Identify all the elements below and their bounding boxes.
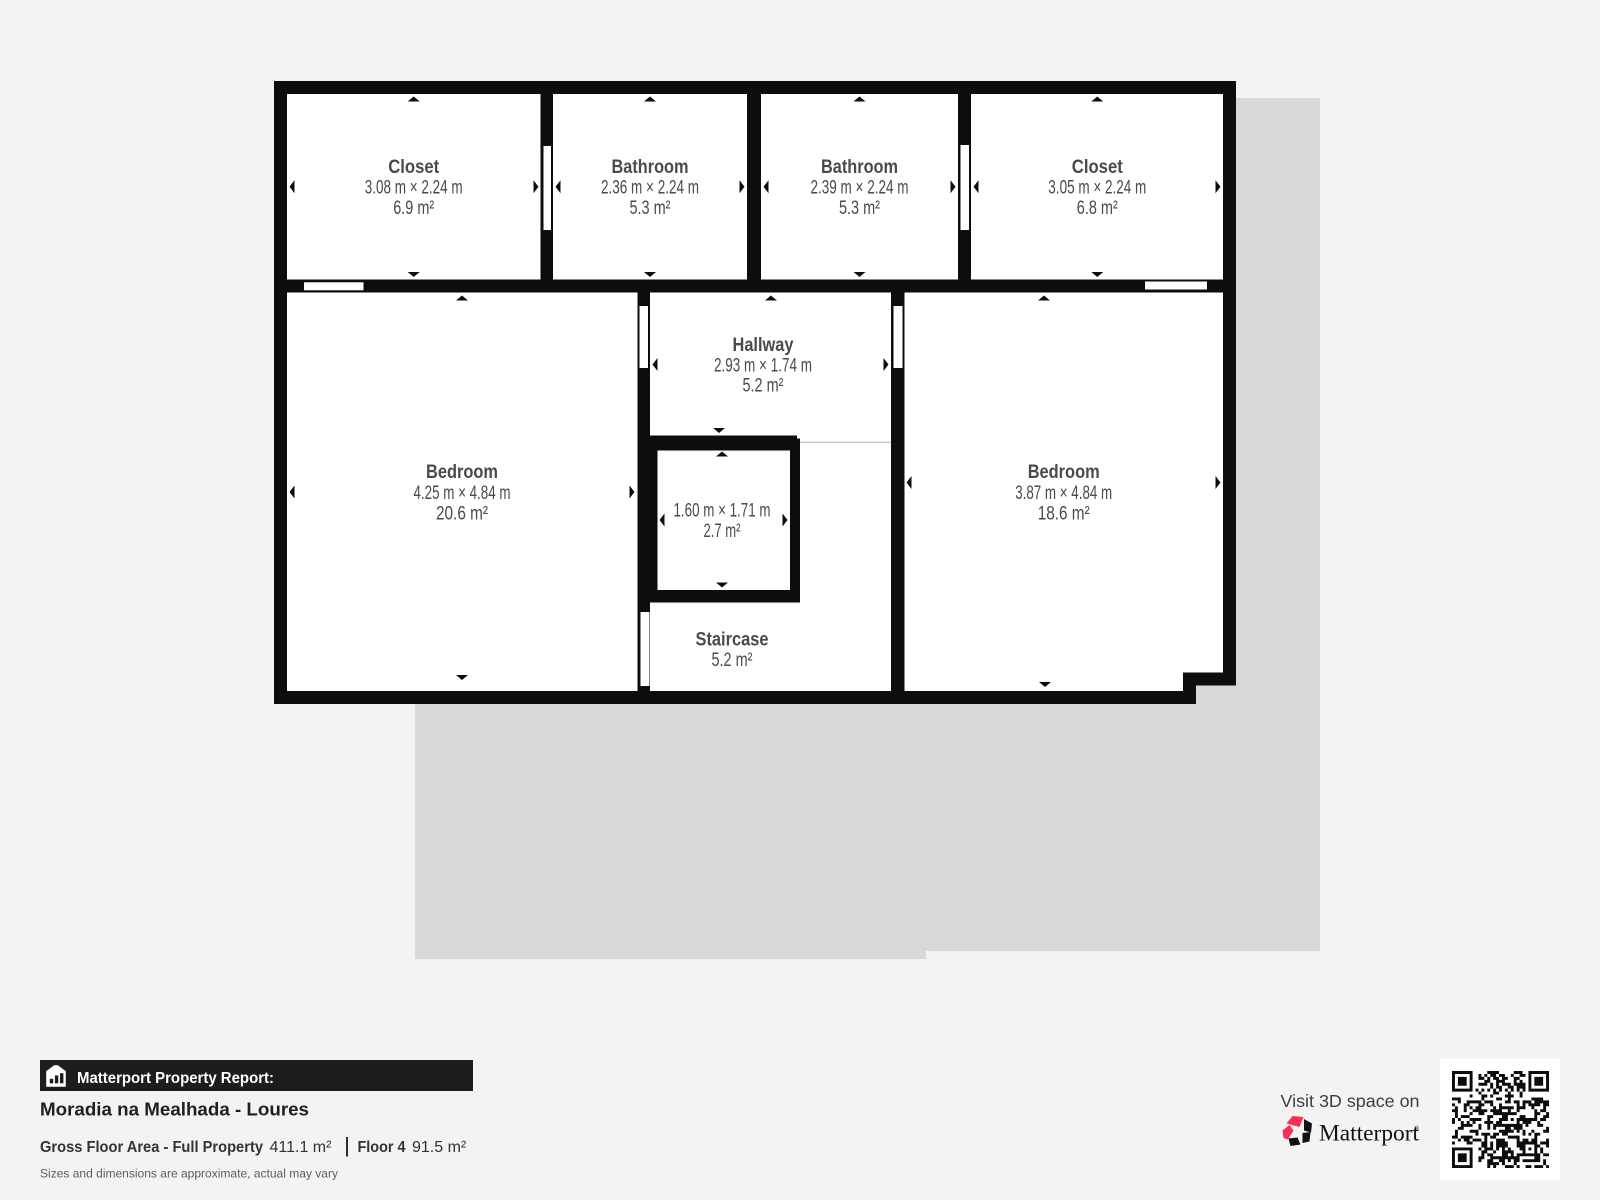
svg-text:3.05 m × 2.24 m: 3.05 m × 2.24 m <box>1048 178 1146 199</box>
svg-text:Matterport: Matterport <box>1319 1121 1420 1146</box>
svg-text:Staircase: Staircase <box>696 630 769 651</box>
svg-text:5.2 m²: 5.2 m² <box>712 650 753 671</box>
svg-text:®: ® <box>1414 1125 1420 1133</box>
svg-text:4.25 m × 4.84 m: 4.25 m × 4.84 m <box>414 483 511 504</box>
svg-text:Matterport Property Report:: Matterport Property Report: <box>77 1070 274 1087</box>
svg-text:2.7 m²: 2.7 m² <box>704 521 741 542</box>
svg-text:3.87 m × 4.84 m: 3.87 m × 4.84 m <box>1015 483 1112 504</box>
svg-text:Sizes and dimensions are appro: Sizes and dimensions are approximate, ac… <box>40 1167 339 1181</box>
svg-text:Bedroom: Bedroom <box>1028 462 1100 483</box>
svg-text:2.39 m × 2.24 m: 2.39 m × 2.24 m <box>811 178 909 199</box>
svg-text:20.6 m²: 20.6 m² <box>436 504 488 525</box>
svg-text:411.1 m²: 411.1 m² <box>270 1139 333 1156</box>
svg-text:Closet: Closet <box>1072 157 1124 178</box>
svg-text:5.3 m²: 5.3 m² <box>839 198 880 219</box>
svg-text:91.5 m²: 91.5 m² <box>412 1139 467 1156</box>
svg-text:Closet: Closet <box>388 157 440 178</box>
svg-text:2.93 m × 1.74 m: 2.93 m × 1.74 m <box>714 356 812 377</box>
svg-text:3.08 m × 2.24 m: 3.08 m × 2.24 m <box>365 178 463 199</box>
svg-text:5.2 m²: 5.2 m² <box>743 376 784 397</box>
svg-text:Visit 3D space on: Visit 3D space on <box>1281 1091 1420 1111</box>
svg-text:6.9 m²: 6.9 m² <box>393 198 434 219</box>
svg-text:Gross Floor Area - Full Proper: Gross Floor Area - Full Property <box>40 1139 263 1156</box>
svg-text:1.60 m × 1.71 m: 1.60 m × 1.71 m <box>674 501 771 522</box>
svg-text:18.6 m²: 18.6 m² <box>1038 504 1090 525</box>
svg-text:6.8 m²: 6.8 m² <box>1077 198 1118 219</box>
svg-text:Moradia na Mealhada - Loures: Moradia na Mealhada - Loures <box>40 1099 309 1120</box>
svg-text:Bedroom: Bedroom <box>426 462 498 483</box>
svg-text:5.3 m²: 5.3 m² <box>630 198 671 219</box>
svg-text:Bathroom: Bathroom <box>612 157 689 178</box>
svg-text:Bathroom: Bathroom <box>821 157 898 178</box>
svg-text:Hallway: Hallway <box>733 335 794 356</box>
svg-text:2.36 m × 2.24 m: 2.36 m × 2.24 m <box>601 178 699 199</box>
svg-text:Floor 4: Floor 4 <box>358 1139 406 1156</box>
